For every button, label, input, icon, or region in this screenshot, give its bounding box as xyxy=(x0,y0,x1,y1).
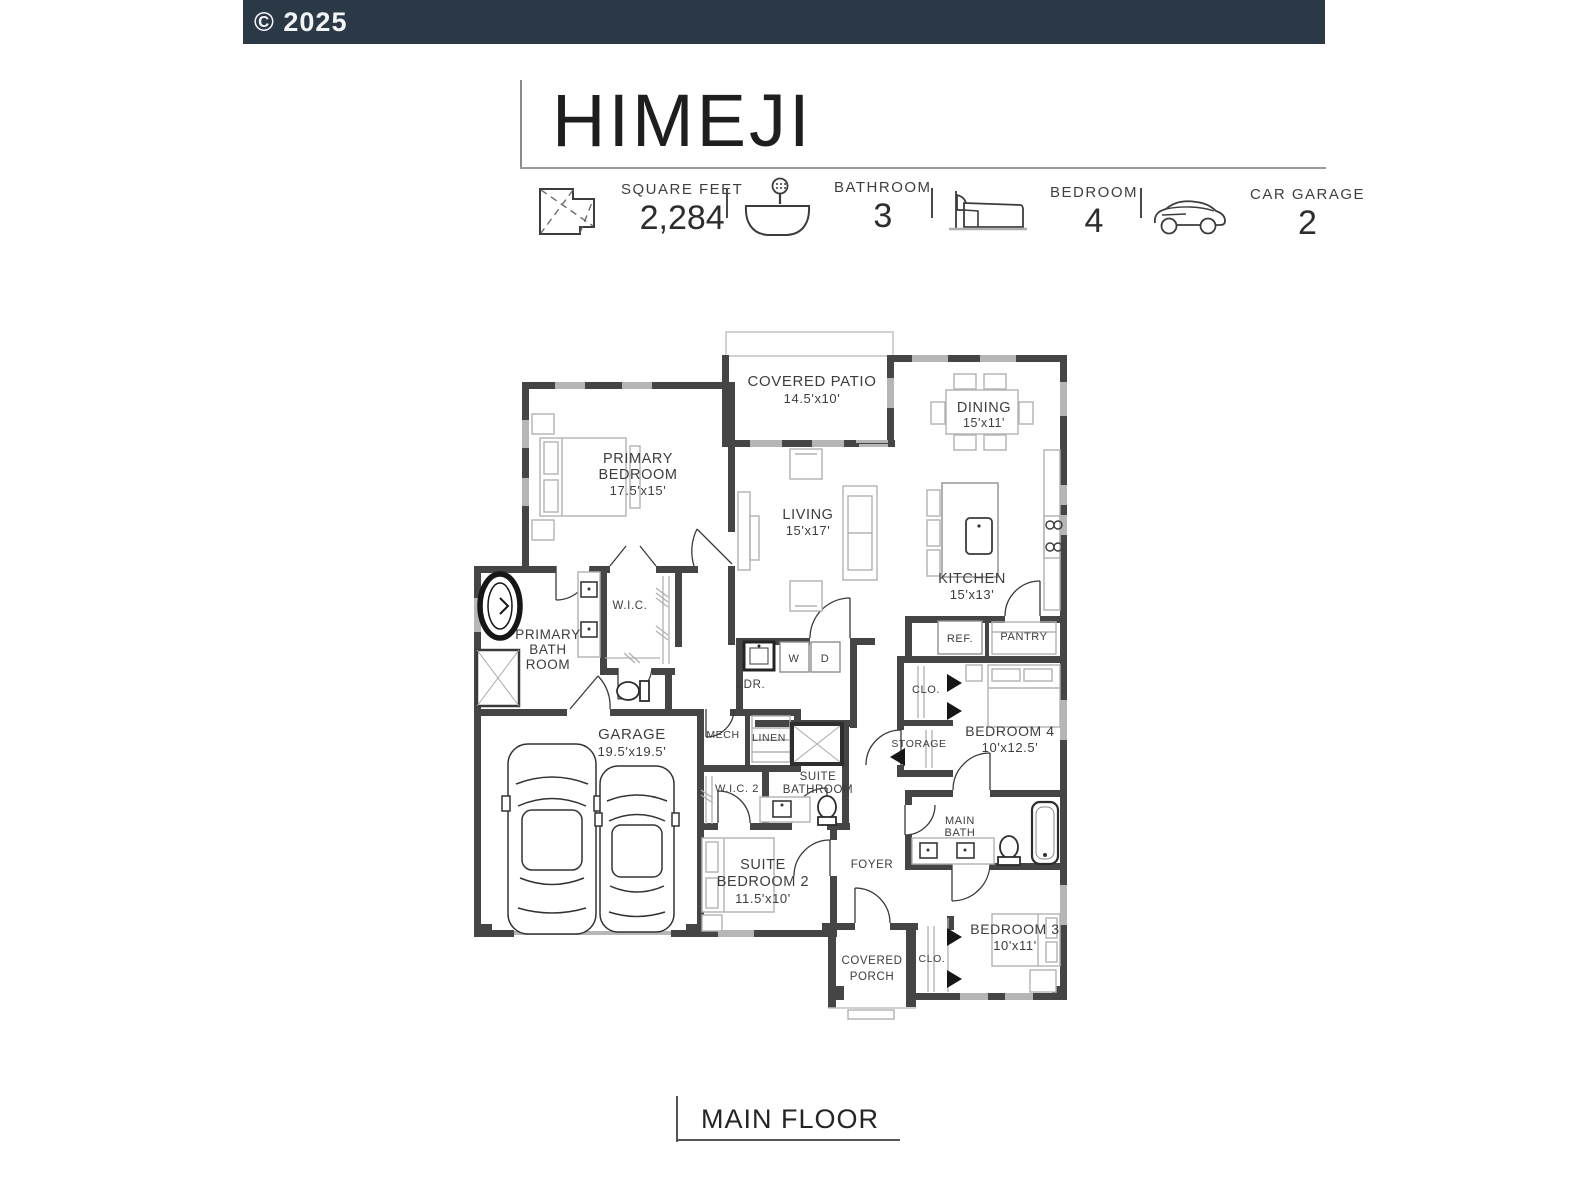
toilet xyxy=(1000,836,1018,858)
copyright-bar: © 2025 xyxy=(243,0,1325,44)
car-garage-value: 2 xyxy=(1298,204,1317,243)
bedroom4-furniture xyxy=(966,665,1060,727)
floorplan-drawing: COVERED PATIO 14.5'x10' DINING 15'x11' P… xyxy=(460,320,1080,1020)
bifold-arrow-icon xyxy=(947,928,962,946)
car-top-icon xyxy=(502,744,602,934)
label-suite-bedroom2: SUITE xyxy=(740,857,786,873)
stool xyxy=(927,520,940,546)
nightstand xyxy=(966,665,982,681)
chair xyxy=(954,435,976,450)
bathroom-value: 3 xyxy=(873,197,892,236)
floorplan-sheet: © 2025 HIMEJI SQUARE FEET 2,284 xyxy=(0,0,1570,1178)
label-covered-patio: COVERED PATIO xyxy=(748,373,877,390)
stat-divider xyxy=(726,188,728,218)
label-primary-bedroom-dims: 17.5'x15' xyxy=(610,483,667,498)
patio-roofline xyxy=(726,332,893,356)
label-kitchen-dims: 15'x13' xyxy=(950,587,995,602)
label-living: LIVING xyxy=(782,507,833,523)
label-ref: REF. xyxy=(947,633,973,645)
label-suite-bathroom: SUITE xyxy=(800,771,837,783)
chair xyxy=(1019,402,1033,424)
title-left-rule xyxy=(520,80,522,167)
label-mech: MECH xyxy=(706,729,739,741)
bedroom-value: 4 xyxy=(1085,202,1104,241)
label-primary-bathroom: ROOM xyxy=(526,657,570,672)
island-sink xyxy=(966,518,992,554)
label-foyer: FOYER xyxy=(851,859,894,871)
chair xyxy=(954,374,976,389)
nightstand xyxy=(702,915,722,931)
car-icon xyxy=(1152,194,1228,236)
label-bedroom3: BEDROOM 3 xyxy=(970,921,1059,937)
label-suite-bedroom2: BEDROOM 2 xyxy=(717,874,809,890)
label-washer: W xyxy=(789,653,800,665)
label-main-bath: MAIN xyxy=(945,815,975,827)
bifold-arrow-icon xyxy=(947,674,962,692)
label-suite-bathroom: BATHROOM xyxy=(783,784,853,796)
label-bedroom3-dims: 10'x11' xyxy=(993,938,1037,953)
bifold-arrow-icon xyxy=(890,748,905,766)
bifold-arrow-icon xyxy=(947,970,962,988)
label-suite-bedroom2-dims: 11.5'x10' xyxy=(735,891,791,906)
car-garage-label: CAR GARAGE xyxy=(1250,186,1365,203)
label-covered-porch: COVERED xyxy=(841,955,902,967)
nightstand xyxy=(1030,970,1056,992)
label-dining: DINING xyxy=(957,400,1011,416)
stat-divider xyxy=(1140,188,1142,218)
label-covered-patio-dims: 14.5'x10' xyxy=(784,391,841,406)
porch-details xyxy=(828,1008,916,1019)
car-top-icon xyxy=(595,766,679,932)
porch-step xyxy=(848,1010,894,1019)
label-wic2: W.I.C. 2 xyxy=(715,783,759,795)
label-living-dims: 15'x17' xyxy=(786,523,831,538)
footer-left-rule xyxy=(676,1096,678,1142)
garage-cars xyxy=(502,744,679,934)
kitchen-fixtures xyxy=(927,450,1062,654)
bathroom-label: BATHROOM xyxy=(834,179,932,196)
label-garage-dims: 19.5'x19.5' xyxy=(598,744,667,759)
square-feet-value: 2,284 xyxy=(640,199,725,238)
stat-bathroom: BATHROOM 3 xyxy=(742,176,932,238)
bed-icon xyxy=(948,189,1028,237)
label-linen: LINEN xyxy=(752,732,786,744)
label-primary-bedroom: BEDROOM xyxy=(598,467,677,483)
label-covered-porch: PORCH xyxy=(850,971,895,983)
bifold-arrow-icon xyxy=(947,702,962,720)
chair xyxy=(931,402,945,424)
square-feet-label: SQUARE FEET xyxy=(621,181,743,198)
toilet xyxy=(818,796,836,818)
label-closet-bedroom3: CLO. xyxy=(919,953,946,965)
floor-label: MAIN FLOOR xyxy=(701,1104,879,1135)
copyright-text: © 2025 xyxy=(243,0,1325,44)
nightstand xyxy=(532,414,554,434)
sink xyxy=(773,801,791,817)
chair xyxy=(984,435,1006,450)
label-storage: STORAGE xyxy=(891,738,946,750)
page-title: HIMEJI xyxy=(552,78,813,163)
nightstand xyxy=(532,520,554,540)
tv-console xyxy=(738,492,750,570)
label-bedroom4: BEDROOM 4 xyxy=(965,723,1054,739)
label-garage: GARAGE xyxy=(598,726,666,743)
stool xyxy=(927,490,940,516)
counter xyxy=(1044,450,1060,610)
label-kitchen: KITCHEN xyxy=(938,571,1006,587)
title-underline xyxy=(520,167,1326,169)
bathtub-icon xyxy=(742,176,812,238)
stat-square-feet: SQUARE FEET 2,284 xyxy=(537,181,743,238)
label-dining-dims: 15'x11' xyxy=(963,416,1005,430)
label-dryer: D xyxy=(821,653,830,665)
toilet xyxy=(617,682,639,700)
label-primary-bedroom: PRIMARY xyxy=(603,451,673,467)
label-primary-bathroom: BATH xyxy=(529,642,566,657)
label-laundry: LDR. xyxy=(737,679,766,691)
label-main-bath: BATH xyxy=(945,827,976,839)
label-closet-bedroom4: CLO. xyxy=(912,684,940,696)
stat-bedroom: BEDROOM 4 xyxy=(948,184,1138,241)
label-primary-bathroom: PRIMARY xyxy=(515,627,580,642)
label-bedroom4-dims: 10'x12.5' xyxy=(982,740,1039,755)
label-pantry: PANTRY xyxy=(1000,631,1047,643)
bedroom-label: BEDROOM xyxy=(1050,184,1138,201)
stat-car-garage: CAR GARAGE 2 xyxy=(1152,186,1365,243)
square-feet-icon xyxy=(537,183,599,237)
chair xyxy=(984,374,1006,389)
footer-underline xyxy=(676,1139,900,1141)
label-wic: W.I.C. xyxy=(613,600,648,612)
stat-divider xyxy=(931,188,933,218)
